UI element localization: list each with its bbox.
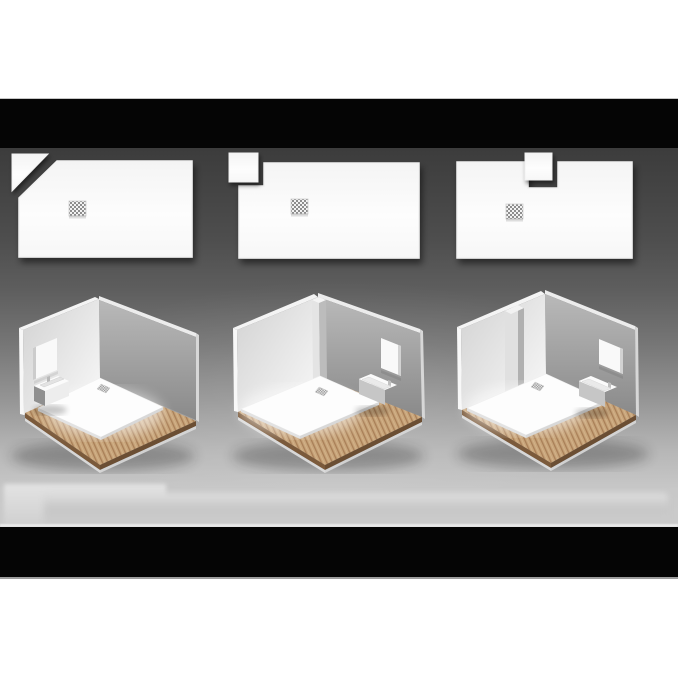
tray-2-cut-piece [229,153,258,182]
scene-svg [0,148,678,527]
bottom-divider-line [0,577,678,579]
room-1-basin-floor-shadow [33,405,67,415]
tray-2-body [239,163,419,258]
tray-3-drain [506,204,523,219]
room-2-pillar-right-face [319,297,327,380]
room-1-mirror-edge [33,347,36,380]
room-2-pillar-left-face [312,297,320,382]
room-2-basin-floor-shadow [355,406,389,416]
room-2-basin-faucet [388,380,391,386]
room-3-basin-floor-shadow [575,408,609,418]
tray-option-2 [229,153,419,258]
room-3-pillar-side-face [518,305,524,395]
room-3-basin-faucet [608,382,611,388]
room-3-mirror-edge [620,348,623,374]
stage-background [0,148,678,527]
letterbox-bar-top [0,99,678,148]
room-2-mirror-edge [398,345,401,376]
tray-1-drain [69,201,86,216]
tray-option-3 [457,153,632,258]
room-1-basin-faucet [47,376,50,382]
room-1-right-wall-outer-edge [196,333,199,422]
room-2-corner-pillar [312,297,327,382]
render-image [0,0,678,678]
room-scene-1 [11,296,199,473]
tray-3-drain-shadow [506,219,523,222]
tray-2-drain-shadow [291,214,308,217]
room-scene-3 [457,290,649,471]
tray-2-drain [291,199,308,214]
letterbox-bar-bottom [0,527,678,577]
room-scene-2 [232,293,425,473]
tray-1-body [19,161,192,257]
tray-option-1 [12,154,192,257]
foreground-blurred-band [44,493,668,527]
tray-3-cut-piece [525,153,552,180]
tray-1-drain-shadow [69,216,86,219]
